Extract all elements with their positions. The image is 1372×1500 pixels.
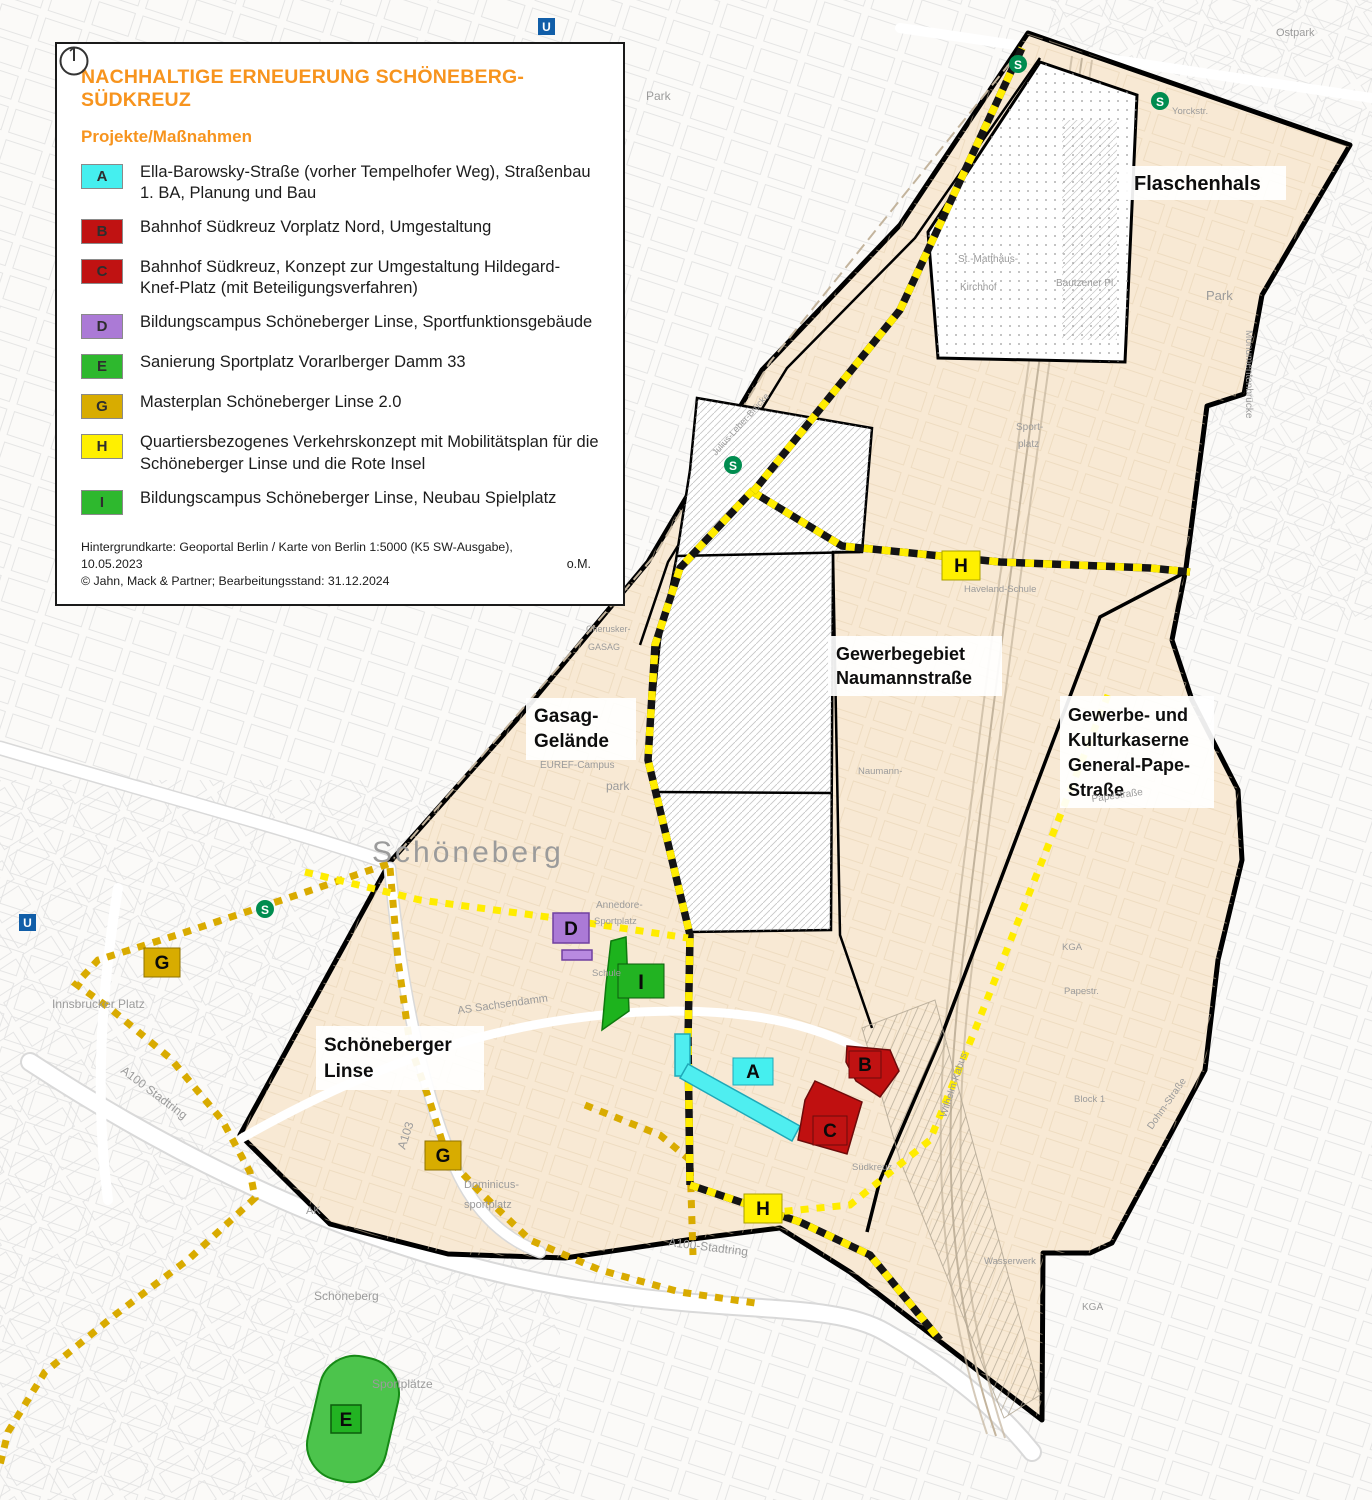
legend-item-label: Ella-Barowsky-Straße (vorher Tempelhofer… (140, 162, 599, 204)
legend-panel: NACHHALTIGE ERNEUERUNG SCHÖNEBERG-SÜDKRE… (55, 42, 625, 606)
legend-swatch-letter: H (97, 438, 108, 455)
map-minor-label: Dominicus- (464, 1179, 519, 1191)
map-minor-label: Papestr. (1064, 986, 1099, 997)
svg-text:I: I (638, 971, 644, 994)
legend-swatch-i: I (81, 490, 123, 515)
map-minor-label: Park (646, 89, 672, 103)
area-label-gasag: Gasag- Gelände (526, 698, 636, 760)
svg-text:S: S (729, 459, 737, 473)
map-minor-label: EUREF-Campus (540, 760, 614, 771)
legend-swatch-letter: A (97, 168, 108, 185)
svg-text:H: H (954, 556, 968, 577)
svg-text:S: S (1014, 58, 1022, 72)
map-minor-label: AK (306, 1205, 321, 1217)
marker-b: B (849, 1051, 881, 1078)
source-line-2: © Jahn, Mack & Partner; Bearbeitungsstan… (81, 573, 557, 590)
marker-a: A (733, 1058, 773, 1085)
svg-text:Gasag-: Gasag- (534, 706, 598, 727)
legend-swatch-h: H (81, 434, 123, 459)
svg-text:C: C (823, 1121, 837, 1142)
svg-text:Naumannstraße: Naumannstraße (836, 668, 972, 688)
marker-h-north: H (942, 551, 980, 580)
map-minor-label: Sportplätze (372, 1377, 433, 1391)
legend-item-label: Quartiersbezogenes Verkehrskonzept mit M… (140, 432, 599, 474)
map-minor-label: sportplatz (464, 1199, 512, 1211)
legend-item-label: Bildungscampus Schöneberger Linse, Sport… (140, 312, 592, 333)
legend-title: NACHHALTIGE ERNEUERUNG SCHÖNEBERG-SÜDKRE… (81, 66, 599, 112)
legend-swatch-letter: G (96, 398, 108, 415)
svg-text:D: D (564, 919, 578, 940)
map-minor-label: Kirchhof (960, 282, 997, 293)
marker-h-south: H (744, 1194, 782, 1223)
project-d-area (562, 950, 592, 960)
source-line-1: Hintergrundkarte: Geoportal Berlin / Kar… (81, 539, 557, 573)
marker-e: E (331, 1405, 361, 1433)
map-minor-label: KGA (1082, 1302, 1103, 1313)
map-minor-label: Ostpark (1276, 27, 1315, 39)
area-label-naumannstrasse: Gewerbegebiet Naumannstraße (828, 636, 1002, 696)
map-minor-label: Schule (592, 968, 621, 979)
legend-item-label: Sanierung Sportplatz Vorarlberger Damm 3… (140, 352, 466, 373)
svg-text:Kulturkaserne: Kulturkaserne (1068, 730, 1189, 750)
map-minor-label: Innsbrucker Platz (52, 997, 145, 1011)
map-canvas: A B C D E G G H H I Flaschenhals (0, 0, 1372, 1500)
sbahn-icon: S (1009, 55, 1027, 73)
svg-text:E: E (340, 1410, 353, 1431)
svg-text:U: U (542, 20, 551, 34)
marker-d: D (553, 913, 589, 943)
legend-item-b: B Bahnhof Südkreuz Vorplatz Nord, Umgest… (81, 217, 599, 244)
area-label-flaschenhals: Flaschenhals (1126, 166, 1286, 200)
svg-text:S: S (261, 903, 269, 917)
map-minor-label: St.-Matthäus- (958, 254, 1018, 265)
svg-text:H: H (756, 1199, 770, 1220)
svg-text:G: G (436, 1146, 451, 1167)
legend-item-label: Bahnhof Südkreuz Vorplatz Nord, Umgestal… (140, 217, 491, 238)
svg-text:Gewerbe- und: Gewerbe- und (1068, 705, 1188, 725)
marker-i: I (618, 964, 664, 998)
sbahn-icon: S (1151, 92, 1169, 110)
marker-g-south: G (425, 1141, 461, 1170)
legend-item-a: A Ella-Barowsky-Straße (vorher Tempelhof… (81, 162, 599, 204)
map-minor-label: Monumentenbrücke (1243, 330, 1254, 419)
legend-swatch-letter: C (97, 263, 108, 280)
svg-text:A: A (746, 1062, 760, 1083)
legend-item-e: E Sanierung Sportplatz Vorarlberger Damm… (81, 352, 599, 379)
legend-swatch-b: B (81, 219, 123, 244)
map-minor-label: Naumann- (858, 766, 902, 777)
legend-item-i: I Bildungscampus Schöneberger Linse, Neu… (81, 488, 599, 515)
svg-text:G: G (155, 953, 170, 974)
map-minor-label: Cherusker- (586, 624, 631, 634)
ubahn-icon: U (538, 18, 555, 35)
area-label-linse: Schöneberger Linse (316, 1026, 484, 1090)
map-minor-label: Block 1 (1074, 1094, 1105, 1105)
legend-swatch-e: E (81, 354, 123, 379)
map-minor-label: GASAG (588, 642, 620, 652)
legend-swatch-letter: D (97, 318, 108, 335)
legend-item-h: H Quartiersbezogenes Verkehrskonzept mit… (81, 432, 599, 474)
svg-text:B: B (858, 1055, 872, 1076)
scale-note: o.M. (567, 557, 591, 571)
svg-text:S: S (1156, 95, 1164, 109)
legend-swatch-letter: B (97, 223, 108, 240)
north-compass-icon (57, 44, 91, 78)
svg-text:Gelände: Gelände (534, 731, 609, 752)
legend-swatch-g: G (81, 394, 123, 419)
legend-swatch-d: D (81, 314, 123, 339)
svg-text:General-Pape-: General-Pape- (1068, 755, 1190, 775)
svg-text:Schöneberger: Schöneberger (324, 1035, 452, 1056)
legend-footer: Hintergrundkarte: Geoportal Berlin / Kar… (81, 539, 599, 591)
legend-subtitle: Projekte/Maßnahmen (81, 127, 599, 147)
map-source-note: Hintergrundkarte: Geoportal Berlin / Kar… (81, 539, 557, 591)
map-minor-label: Annedore- (596, 900, 643, 911)
legend-swatch-a: A (81, 164, 123, 189)
legend-item-label: Bildungscampus Schöneberger Linse, Neuba… (140, 488, 556, 509)
svg-text:Linse: Linse (324, 1061, 374, 1082)
legend-swatch-c: C (81, 259, 123, 284)
map-minor-label: Schöneberg (372, 836, 564, 869)
sbahn-icon: S (256, 900, 274, 918)
map-minor-label: KGA (1062, 942, 1083, 953)
legend-item-label: Bahnhof Südkreuz, Konzept zur Umgestaltu… (140, 257, 599, 299)
marker-c: C (813, 1116, 847, 1145)
legend-item-c: C Bahnhof Südkreuz, Konzept zur Umgestal… (81, 257, 599, 299)
svg-text:Flaschenhals: Flaschenhals (1134, 173, 1261, 195)
map-minor-label: platz (1018, 439, 1039, 450)
map-minor-label: Sportplatz (594, 916, 637, 927)
ubahn-icon: U (19, 914, 36, 931)
map-minor-label: Haveland-Schule (964, 584, 1036, 595)
svg-text:Gewerbegebiet: Gewerbegebiet (836, 644, 965, 664)
map-minor-label: Sport- (1016, 422, 1043, 433)
marker-g-west: G (144, 948, 180, 977)
legend-item-g: G Masterplan Schöneberger Linse 2.0 (81, 392, 599, 419)
legend-swatch-letter: I (100, 494, 104, 511)
svg-text:U: U (23, 916, 32, 930)
sbahn-icon: S (724, 456, 742, 474)
map-minor-label: Park (1206, 288, 1233, 303)
map-minor-label: Südkreuz (852, 1162, 892, 1173)
map-minor-label: Wasserwerk (984, 1256, 1036, 1267)
legend-item-d: D Bildungscampus Schöneberger Linse, Spo… (81, 312, 599, 339)
legend-swatch-letter: E (97, 358, 107, 375)
map-minor-label: Bautzener Pl. (1056, 278, 1116, 289)
map-minor-label: park (606, 779, 630, 793)
map-minor-label: Schöneberg (314, 1289, 379, 1303)
map-minor-label: Yorckstr. (1172, 106, 1208, 117)
legend-item-label: Masterplan Schöneberger Linse 2.0 (140, 392, 401, 413)
